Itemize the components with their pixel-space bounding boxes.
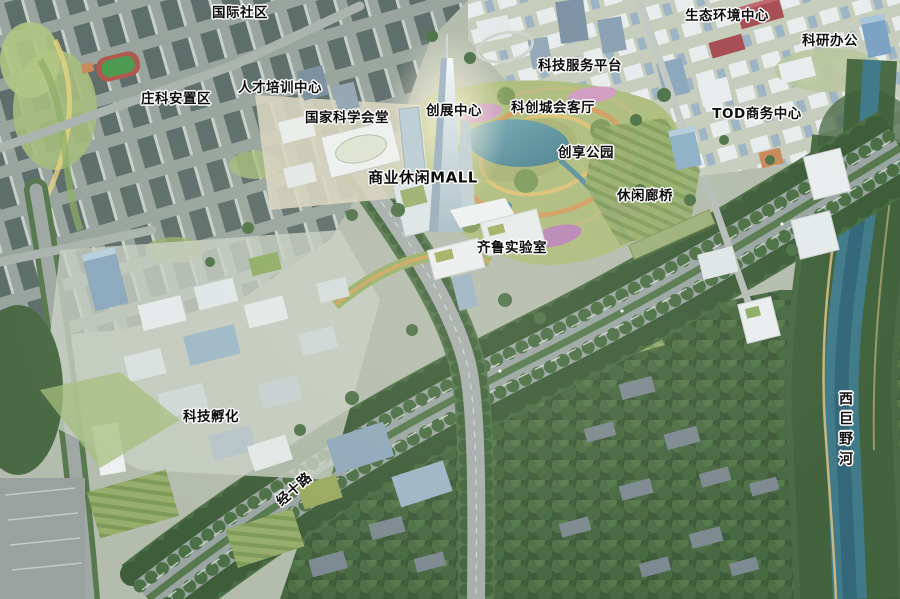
aerial-masterplan-view: 国际社区 生态环境中心 科研办公 科技服务平台 人才培训中心 庄科安置区 科创城… xyxy=(0,0,900,599)
light-haze xyxy=(0,0,900,599)
aerial-rendering xyxy=(0,0,900,599)
